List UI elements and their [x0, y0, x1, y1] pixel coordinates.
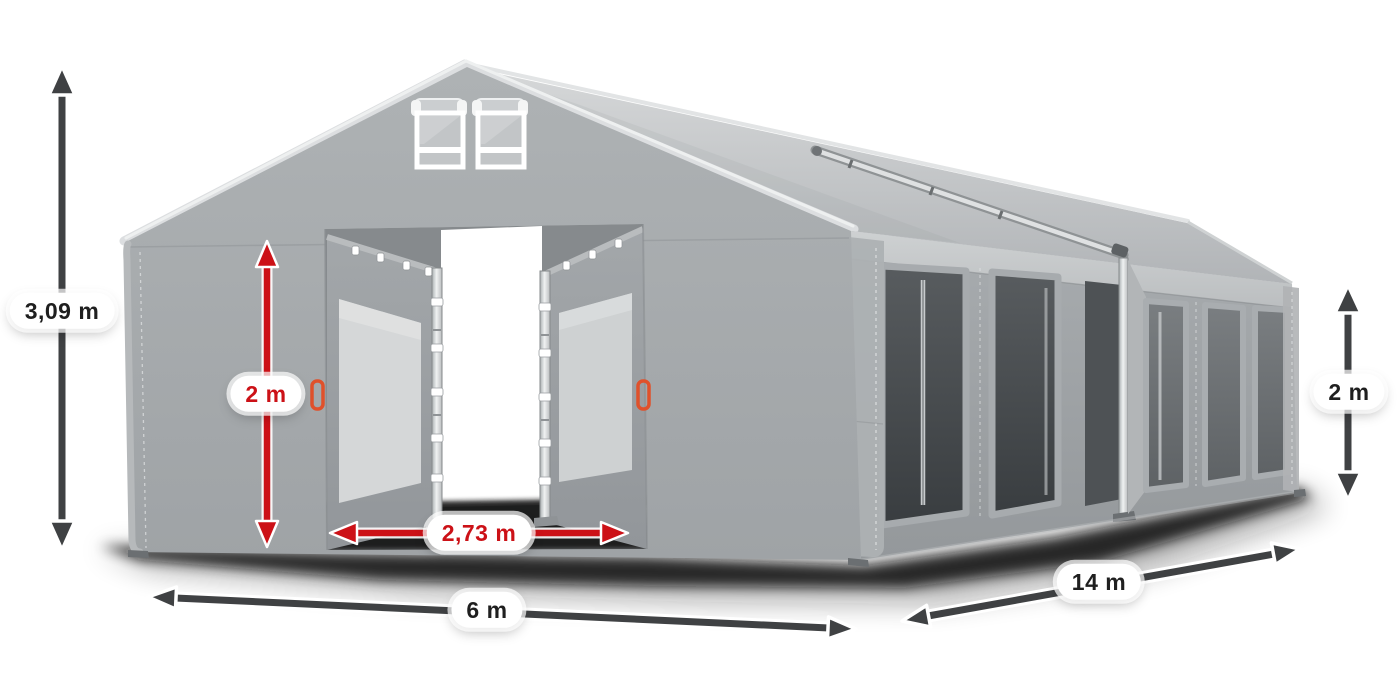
tent-dimension-diagram: 3,09 m 2 m 2,73 m 6 m 14 m 2 m	[0, 0, 1400, 700]
tent-illustration	[0, 0, 1400, 700]
side-length-label: 14 m	[1057, 564, 1141, 600]
side-window-2	[992, 272, 1058, 515]
side-window-4	[1205, 305, 1243, 484]
entrance-left-door-panel	[327, 237, 437, 550]
entrance-opening	[325, 224, 647, 550]
total-height-label: 3,09 m	[10, 293, 115, 329]
gable-vent-left	[411, 99, 467, 167]
side-opening-bay	[1085, 258, 1146, 522]
door-width-label: 2,73 m	[427, 515, 532, 551]
door-height-label: 2 m	[230, 376, 301, 412]
side-window-1	[882, 266, 966, 525]
doorway-see-through	[441, 226, 542, 507]
side-height-label: 2 m	[1313, 374, 1384, 410]
gable-vent-right	[472, 99, 528, 167]
side-window-3	[1146, 301, 1186, 490]
entrance-right-door-panel	[545, 229, 647, 549]
back-corner-post	[1283, 286, 1299, 492]
front-width-label: 6 m	[451, 592, 522, 628]
